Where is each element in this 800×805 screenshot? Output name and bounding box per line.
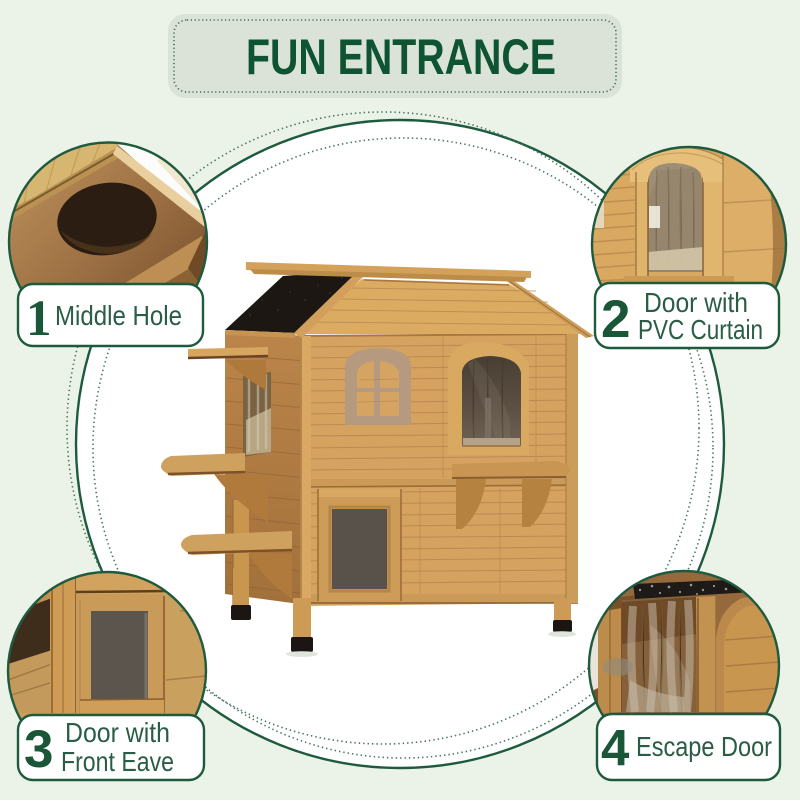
svg-text:FUN ENTRANCE: FUN ENTRANCE xyxy=(246,29,556,85)
svg-text:4: 4 xyxy=(601,719,630,776)
svg-text:Front Eave: Front Eave xyxy=(61,746,174,777)
svg-text:3: 3 xyxy=(24,720,53,779)
svg-text:2: 2 xyxy=(601,290,630,349)
svg-text:1: 1 xyxy=(26,291,52,347)
svg-text:Door with: Door with xyxy=(65,717,170,748)
svg-text:PVC Curtain: PVC Curtain xyxy=(638,314,763,345)
svg-text:Escape Door: Escape Door xyxy=(636,731,772,762)
svg-text:Middle Hole: Middle Hole xyxy=(55,300,182,331)
